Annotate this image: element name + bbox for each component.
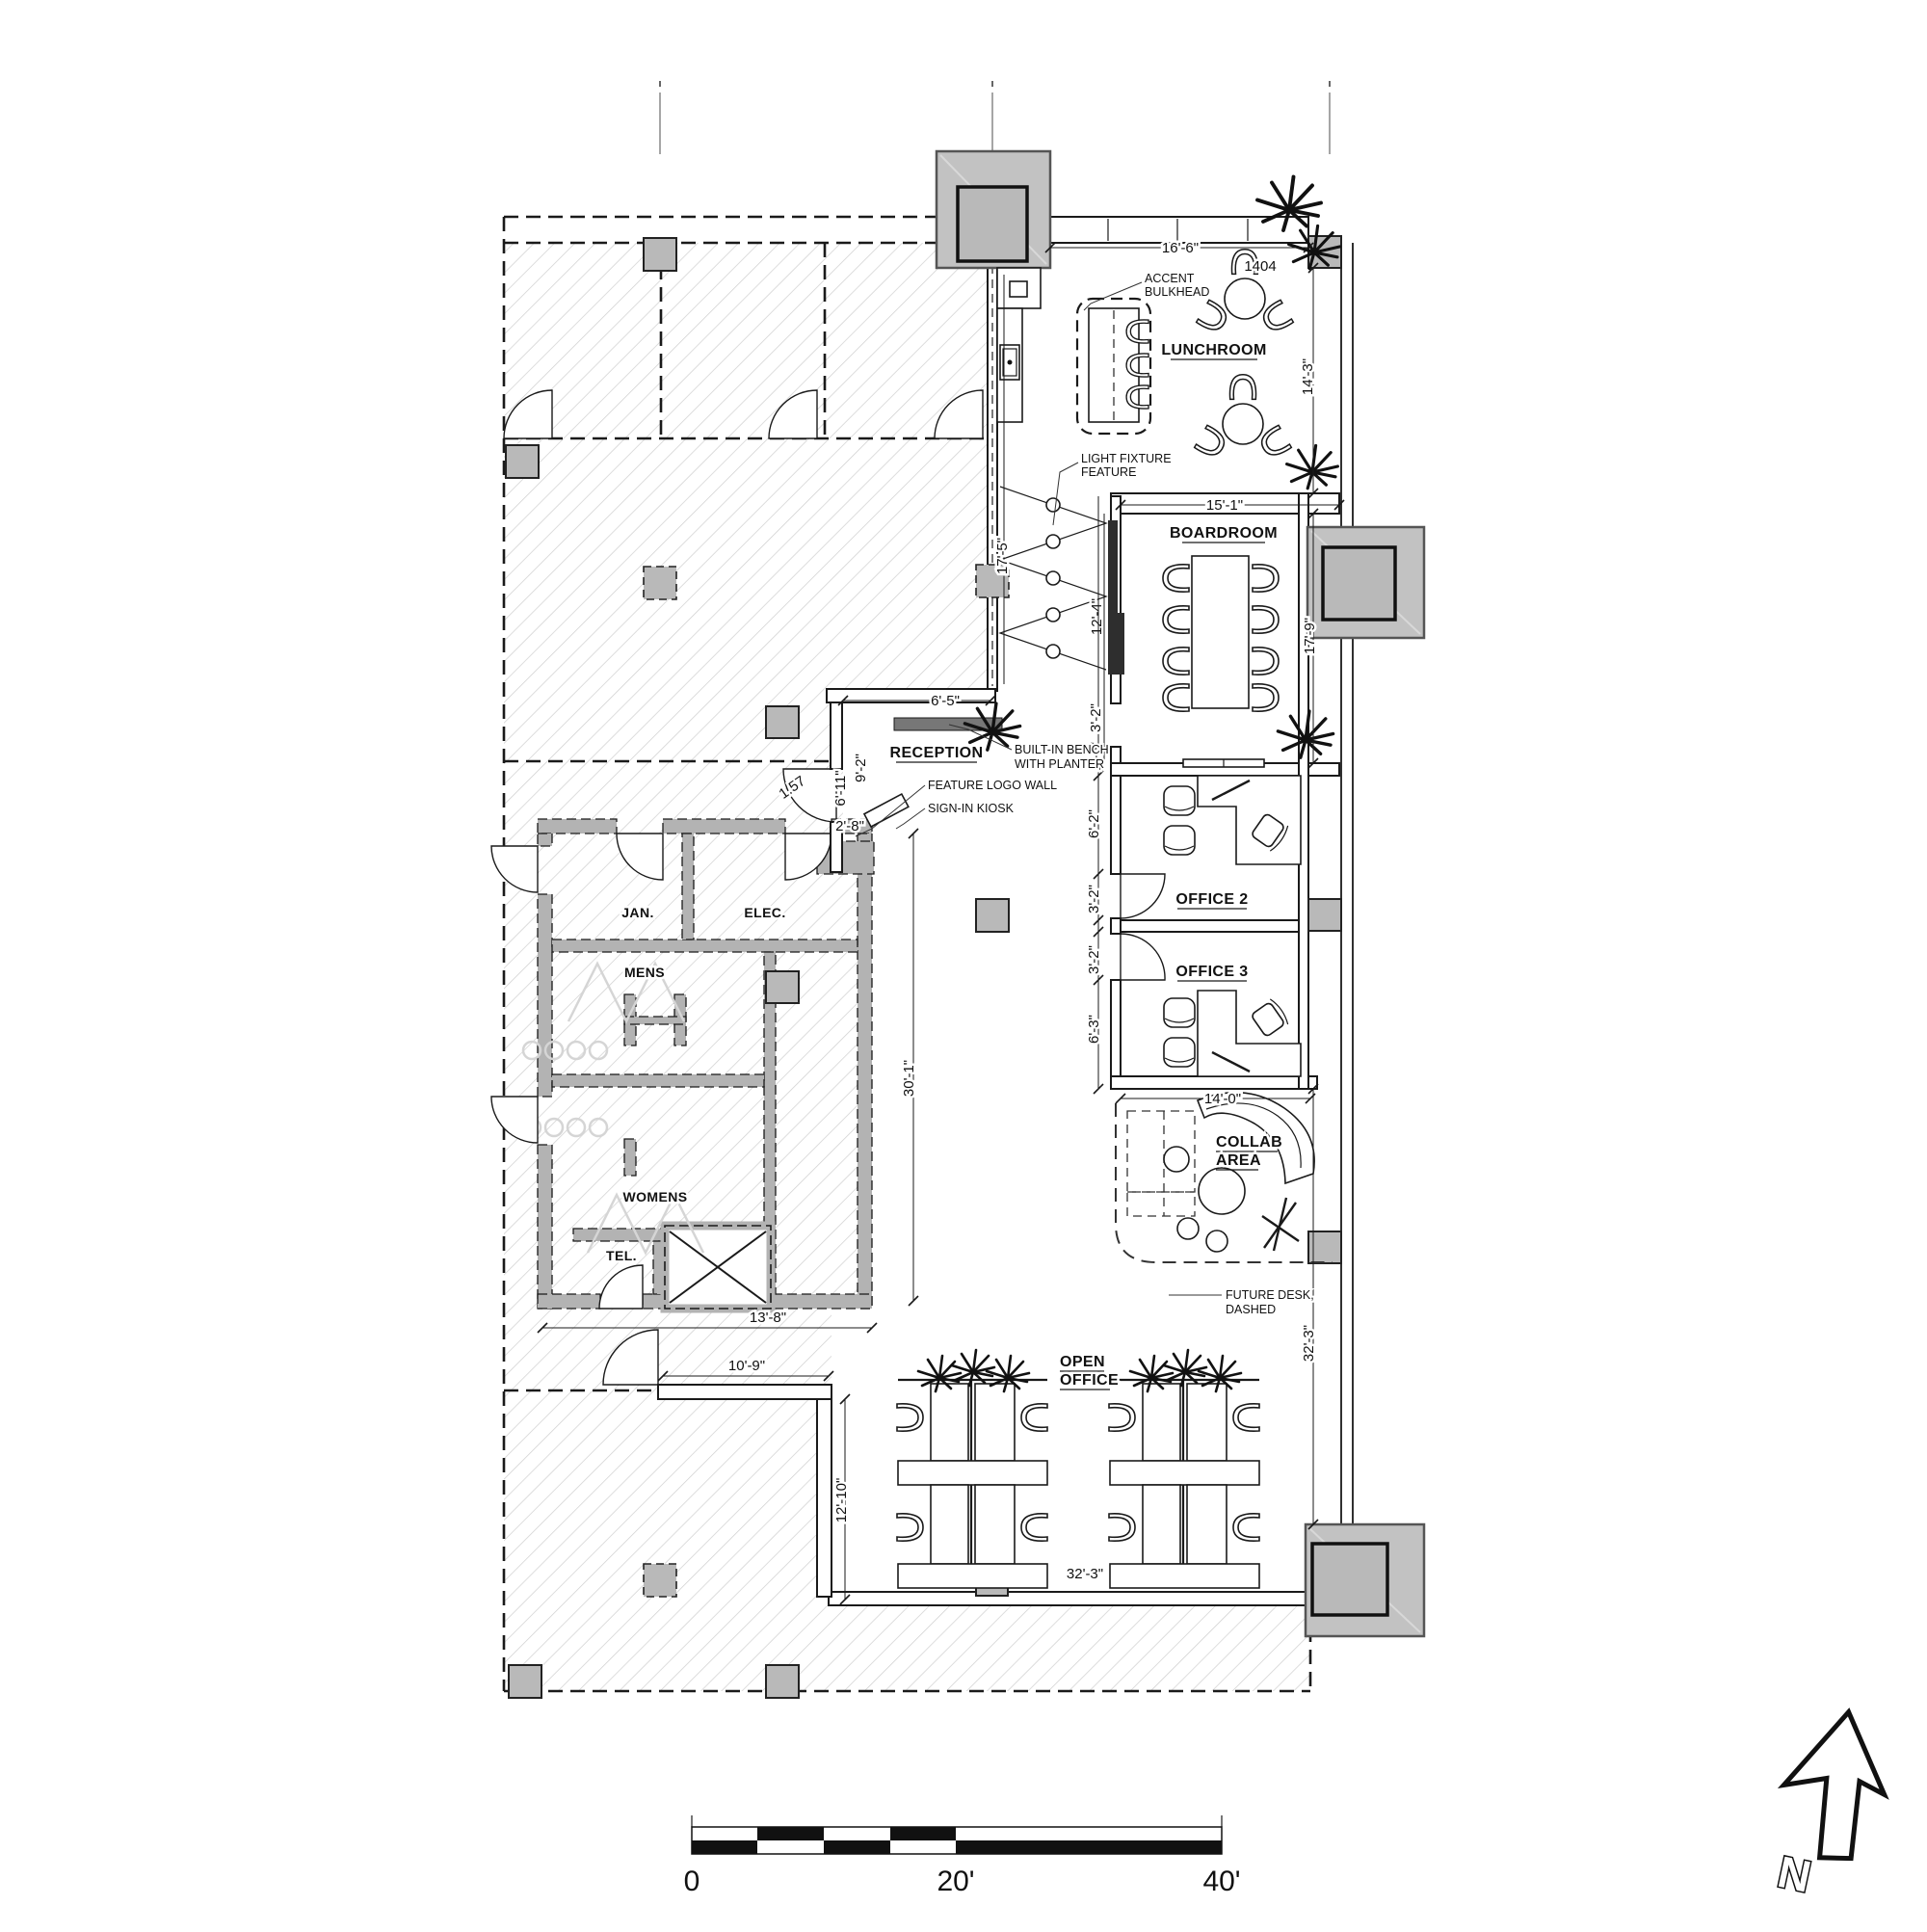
dim-boardroom-depth2: 17'-9" bbox=[1302, 618, 1318, 654]
dim-lunch-depth: 14'-3" bbox=[1300, 358, 1316, 395]
shaft-x bbox=[665, 1226, 771, 1309]
dim-reception-width: 6'-5" bbox=[931, 693, 960, 709]
dim-corridor: 17'-5" bbox=[994, 538, 1011, 574]
scale-mid: 20' bbox=[937, 1866, 974, 1897]
note-bench-1: BUILT-IN BENCH bbox=[1015, 743, 1109, 756]
note-future-1: FUTURE DESK, bbox=[1226, 1288, 1314, 1302]
dim-office3-a: 6'-3" bbox=[1086, 1015, 1102, 1044]
room-tag: 1404 bbox=[1244, 258, 1276, 275]
label-office2: OFFICE 2 bbox=[1175, 891, 1248, 908]
dim-collab-width: 14'-0" bbox=[1204, 1091, 1241, 1107]
dim-entry-w: 10'-9" bbox=[728, 1358, 765, 1374]
dim-boardroom-width: 15'-1" bbox=[1206, 497, 1243, 514]
scale-end: 40' bbox=[1202, 1866, 1240, 1897]
floor-plan-drawing: 16'-6" 14'-3" 15'-1" 12'-4" 17'-9" 17'-5… bbox=[0, 0, 1927, 1927]
scale-zero: 0 bbox=[684, 1866, 700, 1897]
note-bench-2: WITH PLANTER bbox=[1015, 757, 1104, 771]
feature-column-right bbox=[1307, 527, 1424, 638]
label-collab-1: COLLAB bbox=[1216, 1134, 1282, 1151]
feature-column-bottom bbox=[1306, 1524, 1424, 1636]
note-accent-2: BULKHEAD bbox=[1145, 285, 1209, 299]
lunch-table-2 bbox=[1195, 375, 1292, 461]
note-future-2: DASHED bbox=[1226, 1303, 1276, 1316]
dim-washroom-w: 13'-8" bbox=[750, 1310, 786, 1326]
label-lunchroom: LUNCHROOM bbox=[1161, 342, 1266, 358]
note-logo-wall: FEATURE LOGO WALL bbox=[928, 779, 1057, 792]
note-light-2: FEATURE bbox=[1081, 465, 1136, 479]
dim-reception-a: 6'-11" bbox=[832, 770, 849, 806]
north-arrow: N bbox=[1761, 1702, 1900, 1913]
label-collab-2: AREA bbox=[1216, 1152, 1261, 1169]
note-kiosk: SIGN-IN KIOSK bbox=[928, 802, 1015, 815]
label-tel: TEL. bbox=[606, 1248, 637, 1263]
label-reception: RECEPTION bbox=[890, 745, 984, 761]
dim-bench-a: 3'-2" bbox=[1088, 703, 1104, 732]
dim-office3-door: 3'-2" bbox=[1086, 945, 1102, 974]
label-womens: WOMENS bbox=[623, 1189, 688, 1204]
dim-office2-door: 3'-2" bbox=[1086, 885, 1102, 913]
note-accent-1: ACCENT bbox=[1145, 272, 1195, 285]
dim-reception-b: 9'-2" bbox=[853, 754, 869, 782]
office3-furniture bbox=[1164, 991, 1301, 1076]
dim-corridor-v: 30'-1" bbox=[901, 1060, 917, 1097]
note-light-1: LIGHT FIXTURE bbox=[1081, 452, 1172, 465]
sign-in-kiosk bbox=[864, 794, 909, 827]
floor-plan-canvas: 16'-6" 14'-3" 15'-1" 12'-4" 17'-9" 17'-5… bbox=[0, 0, 1927, 1927]
dim-open-office-w: 32'-3" bbox=[1067, 1566, 1103, 1582]
light-fixture-feature bbox=[1000, 487, 1106, 670]
office2-furniture bbox=[1164, 776, 1301, 864]
boardroom-furniture bbox=[1108, 520, 1279, 767]
dim-right-v: 32'-3" bbox=[1301, 1325, 1317, 1362]
dim-entry-d: 12'-10" bbox=[833, 1478, 850, 1523]
dim-lunch-width: 16'-6" bbox=[1162, 240, 1199, 256]
label-open-2: OFFICE bbox=[1060, 1372, 1119, 1389]
label-jan: JAN. bbox=[621, 905, 654, 920]
north-label: N bbox=[1774, 1846, 1815, 1902]
scale-bar: 0 20' 40' bbox=[684, 1815, 1241, 1897]
decor-sticks bbox=[1262, 1198, 1299, 1251]
label-elec: ELEC. bbox=[744, 905, 785, 920]
dim-reception-c: 2'-8" bbox=[835, 818, 864, 834]
label-open-1: OPEN bbox=[1060, 1354, 1105, 1370]
dim-boardroom-depth: 12'-4" bbox=[1089, 598, 1105, 635]
collab-area bbox=[1116, 1093, 1333, 1262]
dim-office2-a: 6'-2" bbox=[1086, 809, 1102, 838]
label-office3: OFFICE 3 bbox=[1175, 964, 1248, 980]
label-mens: MENS bbox=[624, 965, 665, 980]
label-boardroom: BOARDROOM bbox=[1170, 525, 1278, 542]
feature-column-top bbox=[937, 151, 1050, 268]
